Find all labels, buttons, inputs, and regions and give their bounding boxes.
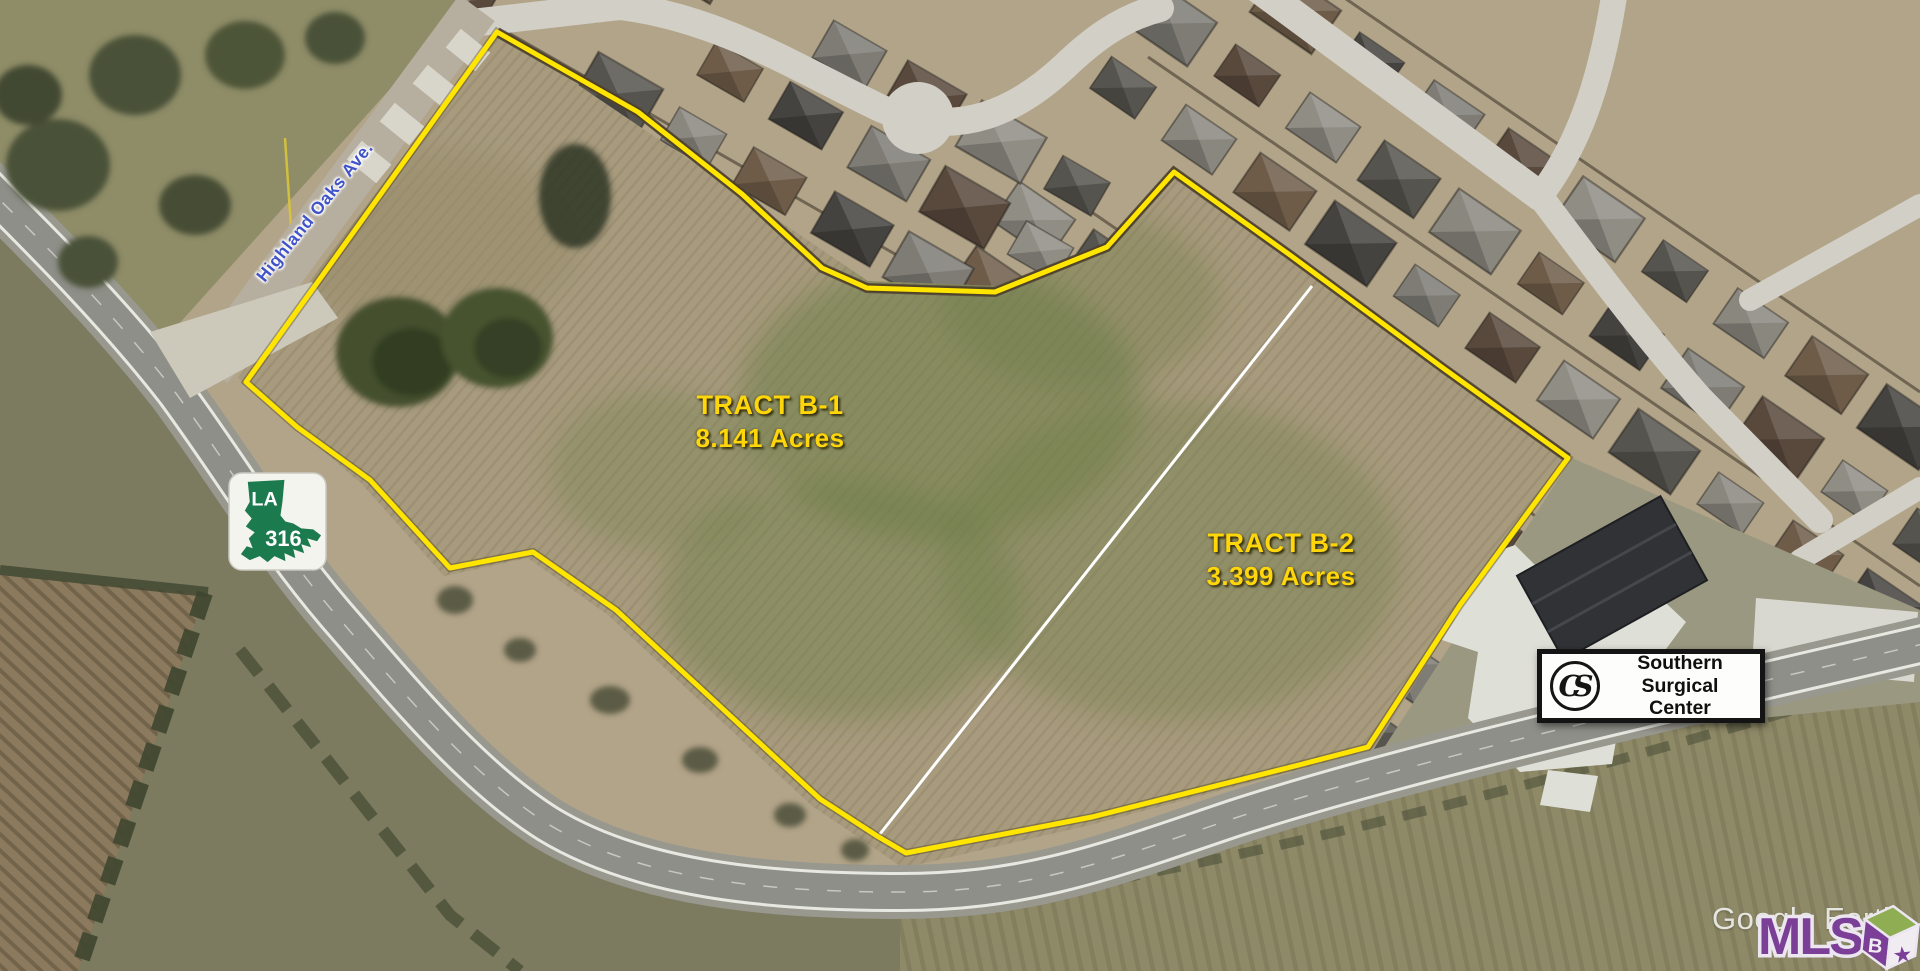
mls-cube-star-icon: ★ (1891, 941, 1913, 968)
aerial-map: Highland Oaks Ave. LA 316 TRACT B-1 8.14… (0, 0, 1920, 971)
sign-line1: Southern (1608, 652, 1752, 675)
mls-logo: MLS B ★ (1756, 900, 1920, 971)
la-316-shield-icon: LA 316 (228, 472, 327, 571)
tract-b2-label: TRACT B-2 3.399 Acres (1131, 527, 1431, 593)
tract-b1-area: 8.141 Acres (620, 422, 920, 455)
sign-line2: Surgical Center (1608, 675, 1752, 720)
tract-b1-name: TRACT B-1 (620, 389, 920, 422)
sign-text: Southern Surgical Center (1608, 652, 1752, 720)
highway-shield-la-316: LA 316 (228, 472, 327, 571)
mls-logo-svg: MLS B ★ (1756, 900, 1920, 971)
mls-cube-icon: B ★ (1860, 903, 1920, 971)
tract-b2-area: 3.399 Acres (1131, 560, 1431, 593)
sign-monogram-icon: CS (1550, 661, 1600, 711)
tract-b2-name: TRACT B-2 (1131, 527, 1431, 560)
mls-text: MLS (1758, 908, 1862, 966)
tract-b1-label: TRACT B-1 8.141 Acres (620, 389, 920, 455)
shield-route-text: 316 (265, 526, 301, 551)
mls-cube-letter: B (1867, 935, 1884, 958)
surgical-center-sign: CS Southern Surgical Center (1537, 649, 1765, 723)
shield-state-text: LA (251, 489, 277, 511)
